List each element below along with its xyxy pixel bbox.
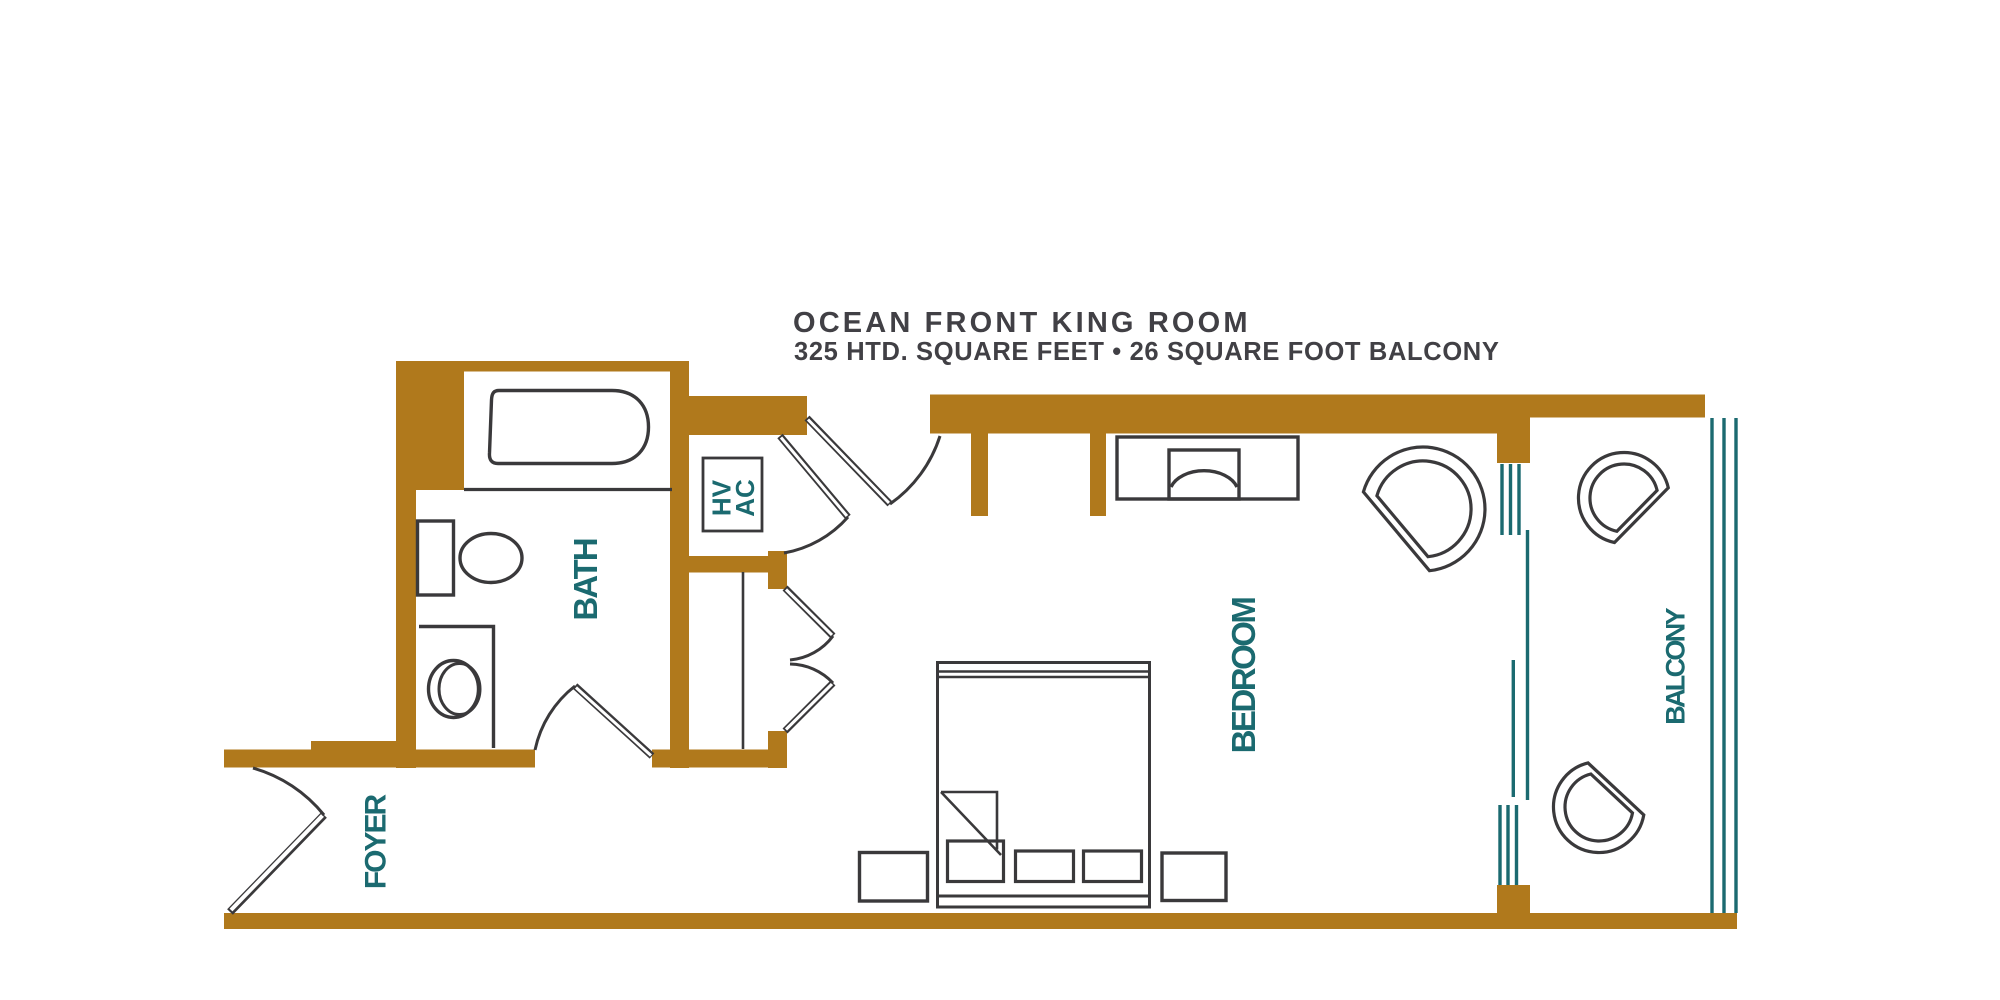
svg-text:FOYER: FOYER — [360, 794, 393, 890]
svg-text:HVAC: HVAC — [707, 479, 761, 517]
svg-text:BATH: BATH — [567, 539, 604, 620]
svg-text:BEDROOM: BEDROOM — [1225, 598, 1262, 754]
svg-text:BALCONY: BALCONY — [1661, 608, 1691, 725]
svg-text:325 HTD. SQUARE FEET • 26 SQUA: 325 HTD. SQUARE FEET • 26 SQUARE FOOT BA… — [794, 338, 1500, 366]
svg-text:OCEAN FRONT KING ROOM: OCEAN FRONT KING ROOM — [793, 307, 1251, 339]
